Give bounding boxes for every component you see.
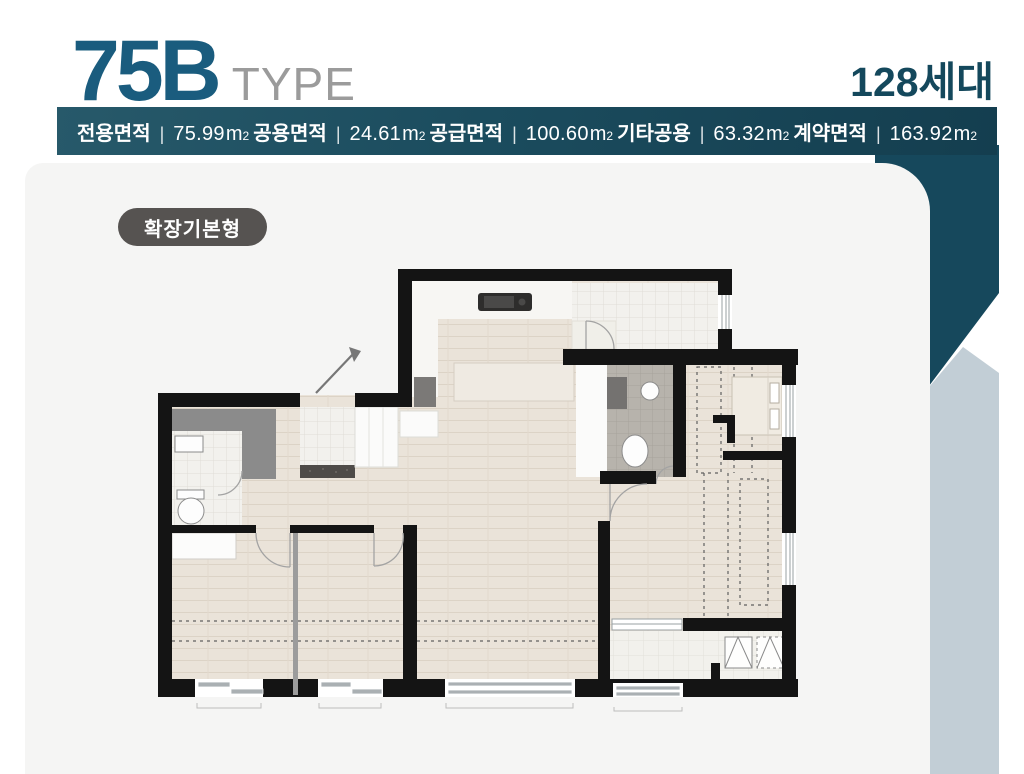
room-utility	[572, 283, 718, 349]
dimension-brackets	[197, 703, 682, 711]
dining-table	[454, 363, 574, 401]
unit-type-suffix: TYPE	[232, 61, 356, 107]
pillow	[770, 409, 779, 429]
unit-type-title: 75B	[72, 28, 218, 114]
shoe-cabinet	[355, 407, 398, 467]
spec-supply-area: 공급면적 | 100.60 m 2	[429, 117, 613, 146]
page-title: 75B TYPE	[72, 28, 356, 114]
room-guest-bathroom	[165, 431, 242, 527]
entrance-arrow-icon	[316, 353, 354, 393]
toilet	[622, 435, 648, 467]
room-master-bathroom	[576, 363, 673, 484]
washer-box-optional	[757, 637, 784, 668]
household-count: 128세대	[850, 62, 994, 103]
toilet	[178, 498, 204, 524]
built-in-wardrobe	[172, 533, 236, 559]
spec-contract-area: 계약면적 | 163.92 m 2	[793, 117, 977, 146]
thin-partition-wall	[293, 533, 298, 695]
floor-plan	[148, 265, 808, 715]
entry-mat	[300, 465, 355, 478]
washer-box	[725, 637, 752, 668]
plan-variant-badge: 확장기본형	[118, 208, 267, 246]
spec-common-area: 공용면적 | 24.61 m 2	[253, 117, 425, 146]
vanity	[607, 377, 627, 409]
sink	[641, 382, 659, 400]
spec-other-common-area: 기타공용 | 63.32 m 2	[617, 117, 789, 146]
sink	[175, 436, 203, 452]
bluegray-chevron-shape	[929, 347, 999, 774]
pillow	[770, 383, 779, 403]
spec-exclusive-area: 전용면적 | 75.99 m 2	[77, 117, 249, 146]
entry-area	[300, 347, 398, 478]
refrigerator	[414, 377, 436, 407]
